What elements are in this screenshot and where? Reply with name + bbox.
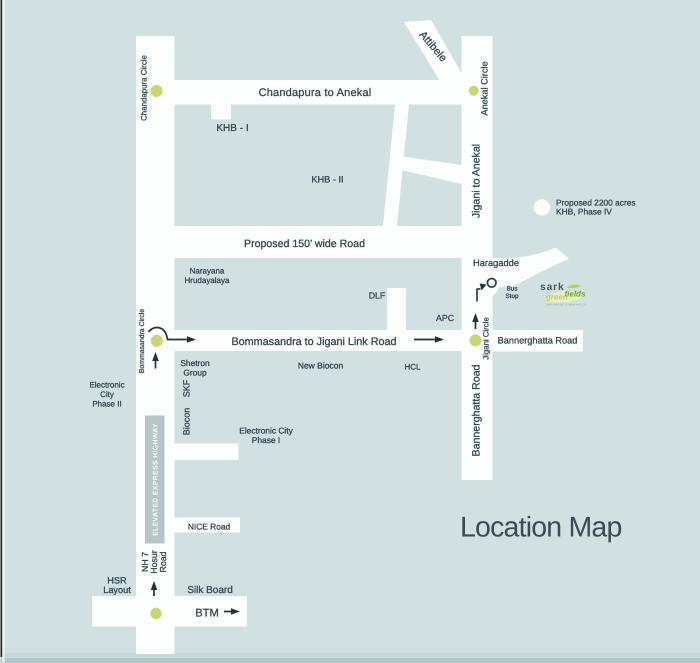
svg-text:Electronic: Electronic	[89, 381, 124, 390]
svg-text:HSR: HSR	[107, 576, 127, 586]
svg-text:Layout: Layout	[103, 585, 131, 595]
svg-text:HCL: HCL	[404, 363, 421, 372]
svg-text:Bommasandra Circle: Bommasandra Circle	[139, 309, 146, 374]
svg-text:KHB, Phase IV: KHB, Phase IV	[556, 207, 612, 217]
svg-text:Stop: Stop	[506, 293, 519, 300]
svg-text:Location Map: Location Map	[460, 512, 622, 544]
svg-text:Chandapura to Anekal: Chandapura to Anekal	[259, 87, 372, 99]
svg-text:sark: sark	[540, 282, 565, 293]
svg-text:New Biocon: New Biocon	[298, 361, 344, 371]
svg-text:Chandapura Circle: Chandapura Circle	[140, 54, 149, 120]
svg-text:Hrudayalaya: Hrudayalaya	[185, 276, 230, 285]
svg-text:KHB - I: KHB - I	[216, 123, 248, 134]
svg-text:SKF: SKF	[182, 379, 192, 397]
svg-text:Bus: Bus	[507, 286, 518, 293]
svg-text:Jigani Circle: Jigani Circle	[482, 317, 491, 359]
svg-text:Phase II: Phase II	[92, 400, 121, 409]
svg-text:Proposed 150’ wide Road: Proposed 150’ wide Road	[244, 238, 365, 250]
svg-text:Road: Road	[158, 551, 168, 572]
svg-text:BTM: BTM	[195, 608, 219, 620]
svg-text:Electronic City: Electronic City	[239, 426, 293, 436]
svg-text:Biocon: Biocon	[182, 408, 192, 436]
svg-text:Jigani to Anekal: Jigani to Anekal	[471, 144, 483, 218]
svg-text:Haragadde: Haragadde	[473, 258, 519, 268]
svg-text:KHB - II: KHB - II	[311, 175, 343, 185]
svg-text:Narayana: Narayana	[190, 267, 225, 276]
svg-text:NICE Road: NICE Road	[188, 522, 231, 532]
svg-text:Group: Group	[183, 368, 207, 378]
svg-text:Bommasandra to Jigani Link Roa: Bommasandra to Jigani Link Road	[231, 336, 396, 348]
svg-text:Anekal Circle: Anekal Circle	[480, 61, 490, 115]
svg-text:ELEVATED EXPRESS HIGHWAY: ELEVATED EXPRESS HIGHWAY	[153, 423, 160, 536]
svg-text:SARK PROJECTS INDIA PVT LTD: SARK PROJECTS INDIA PVT LTD	[546, 304, 586, 307]
svg-text:Shetron: Shetron	[180, 358, 210, 368]
svg-text:APC: APC	[436, 313, 455, 323]
svg-text:Bannerghatta Road: Bannerghatta Road	[498, 336, 578, 346]
svg-text:DLF: DLF	[369, 291, 386, 301]
svg-text:Bannerghatta Road: Bannerghatta Road	[471, 364, 483, 456]
svg-text:Silk Board: Silk Board	[187, 585, 233, 596]
svg-text:Phase I: Phase I	[252, 435, 280, 445]
svg-text:fields: fields	[565, 290, 586, 299]
svg-text:City: City	[100, 390, 114, 399]
